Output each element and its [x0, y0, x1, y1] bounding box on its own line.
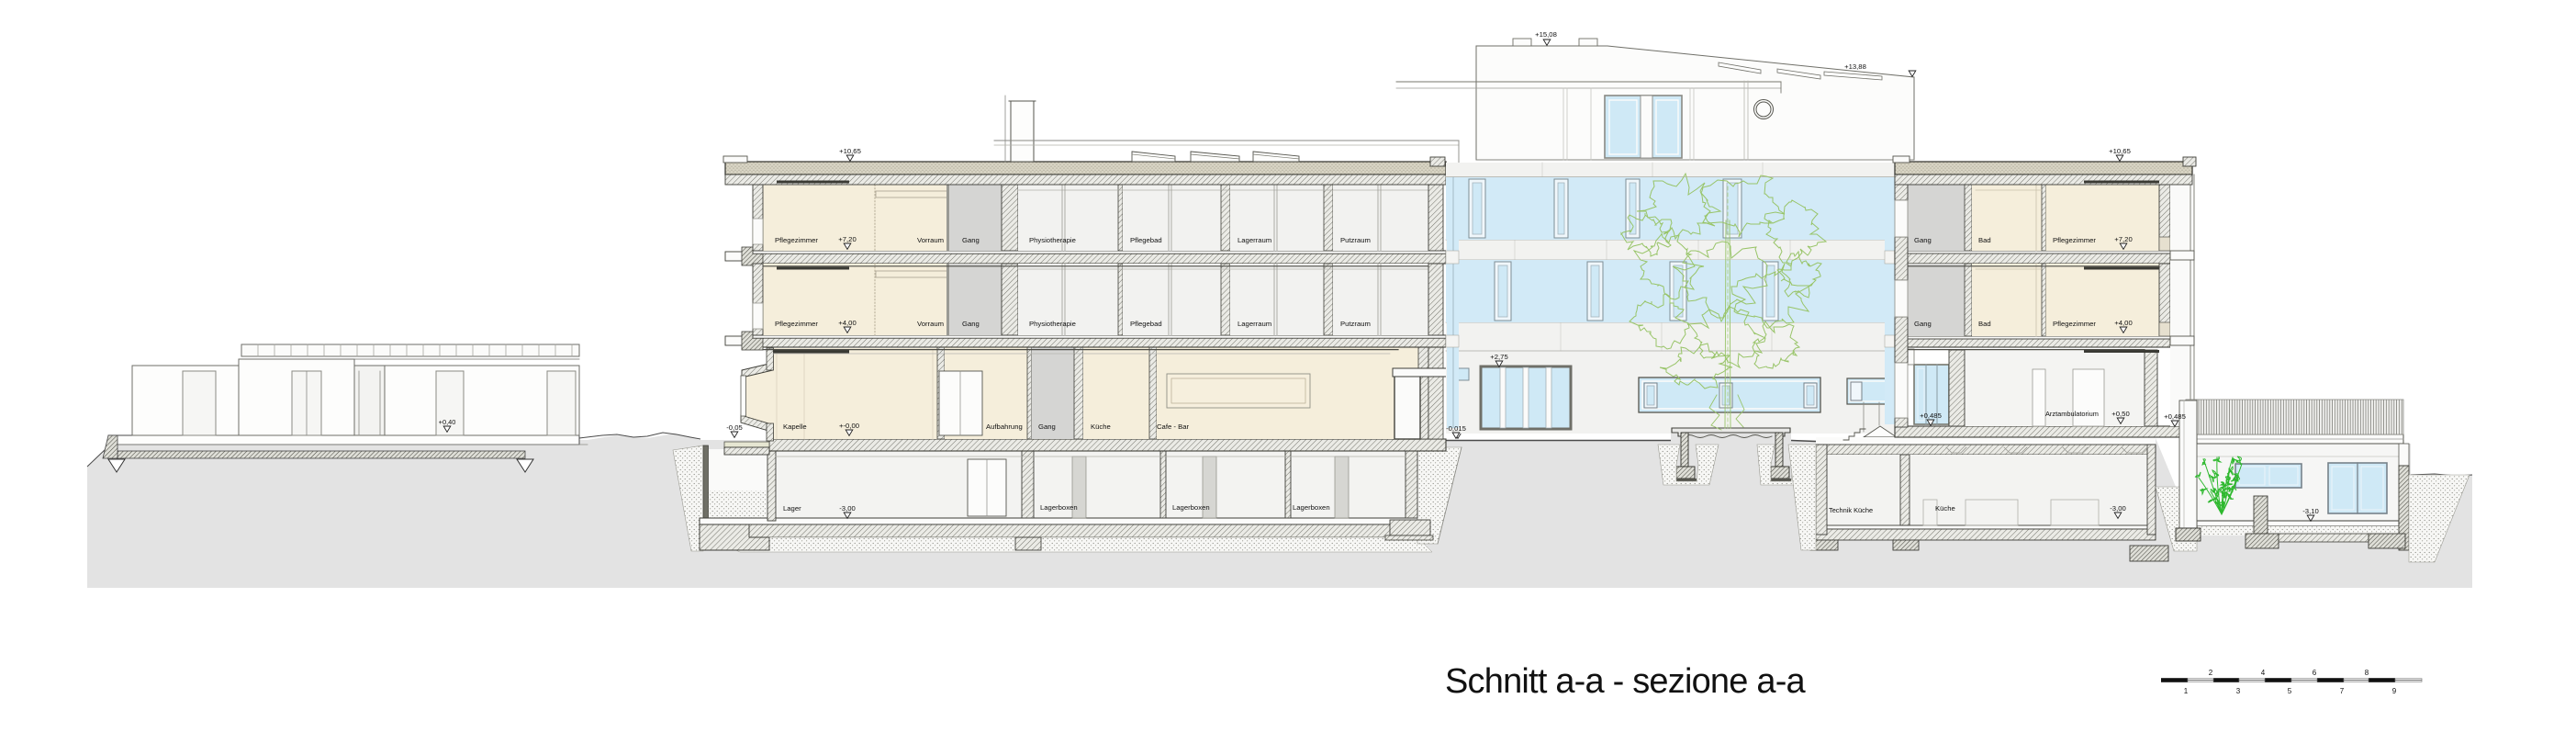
svg-text:1: 1 — [2184, 687, 2189, 695]
svg-text:+-0,00: +-0,00 — [839, 422, 859, 430]
svg-text:Pflegezimmer: Pflegezimmer — [2053, 236, 2096, 244]
svg-text:5: 5 — [2288, 687, 2292, 695]
svg-text:8: 8 — [2365, 669, 2369, 677]
svg-text:Lagerraum: Lagerraum — [1238, 320, 1271, 328]
svg-text:Pflegezimmer: Pflegezimmer — [2053, 320, 2096, 328]
svg-text:Lagerboxen: Lagerboxen — [1293, 503, 1330, 512]
svg-text:4: 4 — [2261, 669, 2266, 677]
svg-text:Küche: Küche — [1935, 504, 1955, 513]
svg-text:Bad: Bad — [1978, 236, 1991, 244]
svg-text:Arztambulatorium: Arztambulatorium — [2045, 410, 2099, 418]
svg-text:Pflegebad: Pflegebad — [1130, 320, 1162, 328]
svg-text:Lagerboxen: Lagerboxen — [1172, 503, 1210, 512]
svg-text:2: 2 — [2209, 669, 2213, 677]
svg-text:Kapelle: Kapelle — [783, 423, 807, 431]
svg-text:Putzraum: Putzraum — [1340, 320, 1371, 328]
svg-text:Gang: Gang — [1914, 320, 1932, 328]
svg-text:-3,00: -3,00 — [839, 504, 856, 513]
svg-text:+7,20: +7,20 — [2114, 235, 2132, 243]
svg-text:Schnitt a-a - sezione a-a: Schnitt a-a - sezione a-a — [1445, 662, 1807, 701]
svg-text:9: 9 — [2392, 687, 2397, 695]
svg-text:Gang: Gang — [1914, 236, 1932, 244]
svg-text:Lagerraum: Lagerraum — [1238, 236, 1271, 244]
svg-text:7: 7 — [2340, 687, 2345, 695]
svg-text:Lagerboxen: Lagerboxen — [1040, 503, 1078, 512]
svg-text:Gang: Gang — [962, 236, 980, 244]
svg-text:Gang: Gang — [1038, 423, 1056, 431]
svg-text:6: 6 — [2313, 669, 2317, 677]
svg-text:+4,00: +4,00 — [2114, 319, 2132, 327]
svg-text:Lager: Lager — [783, 504, 801, 513]
svg-text:Putzraum: Putzraum — [1340, 236, 1371, 244]
svg-text:Pflegezimmer: Pflegezimmer — [775, 236, 818, 244]
svg-text:Pflegezimmer: Pflegezimmer — [775, 320, 818, 328]
svg-text:+7,20: +7,20 — [838, 235, 856, 243]
svg-text:Pflegebad: Pflegebad — [1130, 236, 1162, 244]
svg-text:+0,485: +0,485 — [2164, 412, 2186, 421]
svg-text:Technik Küche: Technik Küche — [1829, 506, 1873, 514]
svg-text:Vorraum: Vorraum — [917, 320, 944, 328]
svg-text:-3,00: -3,00 — [2110, 504, 2126, 513]
svg-text:Bad: Bad — [1978, 320, 1991, 328]
svg-text:Küche: Küche — [1091, 423, 1111, 431]
svg-text:Physiotherapie: Physiotherapie — [1029, 320, 1076, 328]
svg-text:+10,65: +10,65 — [2109, 147, 2131, 155]
svg-text:-0,015: -0,015 — [1446, 424, 1466, 433]
svg-text:-3,10: -3,10 — [2302, 507, 2319, 515]
svg-text:Vorraum: Vorraum — [917, 236, 944, 244]
svg-text:+15,08: +15,08 — [1535, 30, 1557, 39]
svg-text:Aufbahrung: Aufbahrung — [986, 423, 1023, 431]
svg-text:3: 3 — [2236, 687, 2241, 695]
svg-text:Gang: Gang — [962, 320, 980, 328]
svg-text:+0,40: +0,40 — [439, 418, 456, 426]
svg-text:-0,05: -0,05 — [726, 423, 743, 432]
svg-text:+0,50: +0,50 — [2111, 410, 2129, 418]
svg-text:+4,00: +4,00 — [838, 319, 856, 327]
svg-text:+13,88: +13,88 — [1844, 62, 1866, 71]
svg-text:Cafe - Bar: Cafe - Bar — [1157, 423, 1189, 431]
svg-text:+10,65: +10,65 — [839, 147, 861, 155]
svg-text:+2,75: +2,75 — [1490, 353, 1507, 361]
svg-text:+0,485: +0,485 — [1920, 411, 1942, 420]
svg-text:Physiotherapie: Physiotherapie — [1029, 236, 1076, 244]
